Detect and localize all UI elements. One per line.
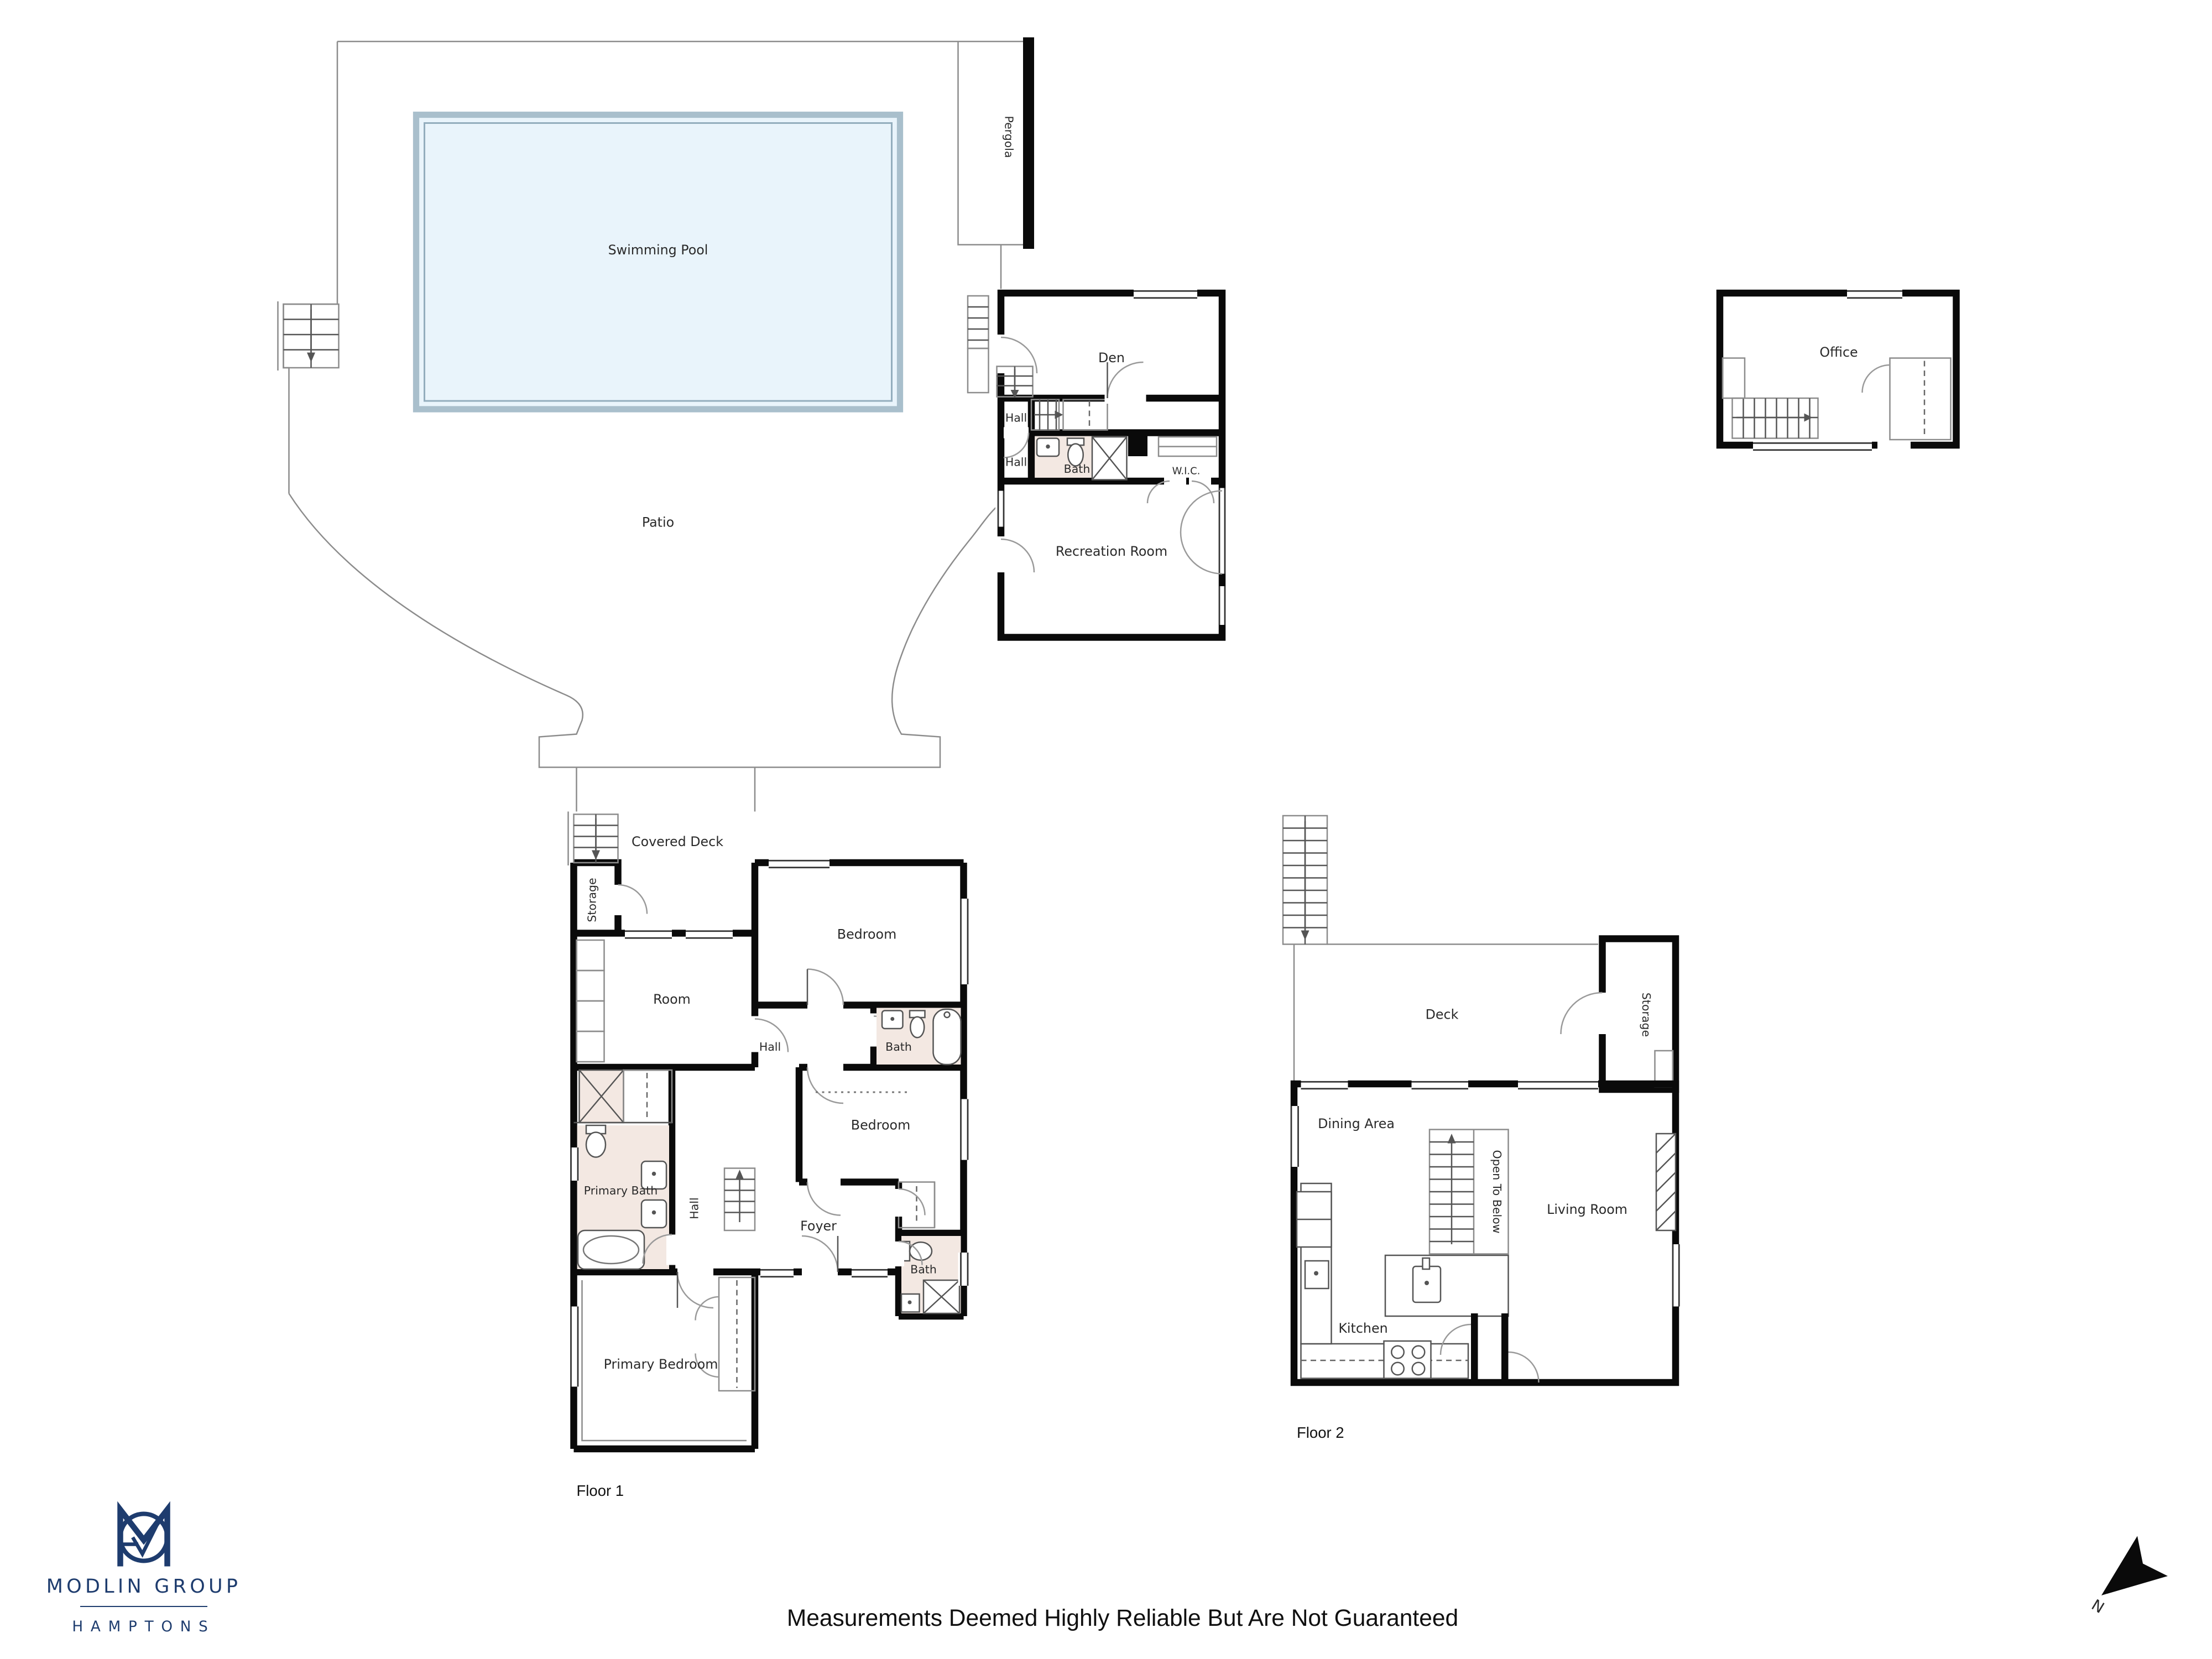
floorplan-page: Swimming Pool Patio Pergola	[0, 0, 2212, 1659]
living-room-label: Living Room	[1547, 1202, 1627, 1217]
fireplace	[1656, 1134, 1676, 1230]
north-compass: N	[2088, 1536, 2168, 1618]
kitchen-label: Kitchen	[1338, 1321, 1387, 1336]
primary-bath-label: Primary Bath	[584, 1184, 658, 1197]
covered-deck-label: Covered Deck	[632, 834, 723, 849]
hall-upper-label: Hall	[1005, 411, 1027, 425]
floor1-bath-upper	[877, 1008, 961, 1065]
patio-label: Patio	[642, 515, 674, 530]
north-label: N	[2088, 1596, 2107, 1617]
lower-level-plan: Den Hall Hall Bath W.I.C. Recreation Roo…	[968, 288, 1228, 641]
pergola-label: Pergola	[1003, 116, 1016, 158]
brand-region-name: HAMPTONS	[72, 1619, 215, 1635]
north-arrow-icon	[2101, 1536, 2168, 1596]
pergola-wall	[1023, 38, 1034, 249]
deck-label: Deck	[1426, 1007, 1459, 1022]
patio-stairs	[278, 301, 339, 371]
primary-bath-room	[577, 1125, 669, 1269]
office-plan: Office	[1717, 288, 1962, 451]
hall-lower-label: Hall	[1005, 456, 1027, 469]
foyer-label: Foyer	[800, 1218, 837, 1234]
bedroom-upper-label: Bedroom	[837, 927, 896, 942]
floor1-hall-lower-label: Hall	[688, 1197, 701, 1219]
floor1-hall-label: Hall	[759, 1040, 781, 1053]
lower-bath-label: Bath	[1064, 462, 1091, 476]
floor2-title: Floor 2	[1297, 1424, 1344, 1441]
wic-label: W.I.C.	[1172, 466, 1201, 477]
primary-bath-shower	[580, 1070, 624, 1123]
swimming-pool-label: Swimming Pool	[608, 242, 708, 258]
dining-area-label: Dining Area	[1318, 1116, 1395, 1131]
floor1-title: Floor 1	[577, 1482, 624, 1499]
primary-bedroom-label: Primary Bedroom	[604, 1357, 718, 1372]
floor1-plan: Storage	[568, 812, 969, 1500]
office-label: Office	[1819, 345, 1858, 360]
den-exterior-stairs	[968, 296, 989, 393]
brand-company-name: MODLIN GROUP	[46, 1575, 242, 1598]
room-label: Room	[653, 992, 691, 1007]
pool-patio-area: Swimming Pool Patio Pergola	[278, 38, 1035, 863]
den-label: Den	[1098, 350, 1125, 366]
recreation-room-label: Recreation Room	[1056, 544, 1167, 559]
open-to-below-label: Open To Below	[1490, 1150, 1504, 1233]
brand-logo: MODLIN GROUP HAMPTONS	[46, 1510, 242, 1635]
floor2-storage-label: Storage	[1640, 993, 1653, 1037]
bath-upper-label: Bath	[885, 1040, 912, 1053]
bath-lower-label: Bath	[910, 1263, 937, 1276]
floorplan-canvas: Swimming Pool Patio Pergola	[0, 0, 2212, 1659]
floor1-storage-label: Storage	[586, 878, 599, 922]
modlin-group-logo-icon	[121, 1510, 168, 1567]
bedroom-lower-label: Bedroom	[851, 1118, 910, 1133]
disclaimer-text: Measurements Deemed Highly Reliable But …	[787, 1605, 1458, 1631]
floor2-plan: Storage Open To Below	[1280, 809, 1684, 1442]
swimming-pool	[416, 115, 900, 410]
